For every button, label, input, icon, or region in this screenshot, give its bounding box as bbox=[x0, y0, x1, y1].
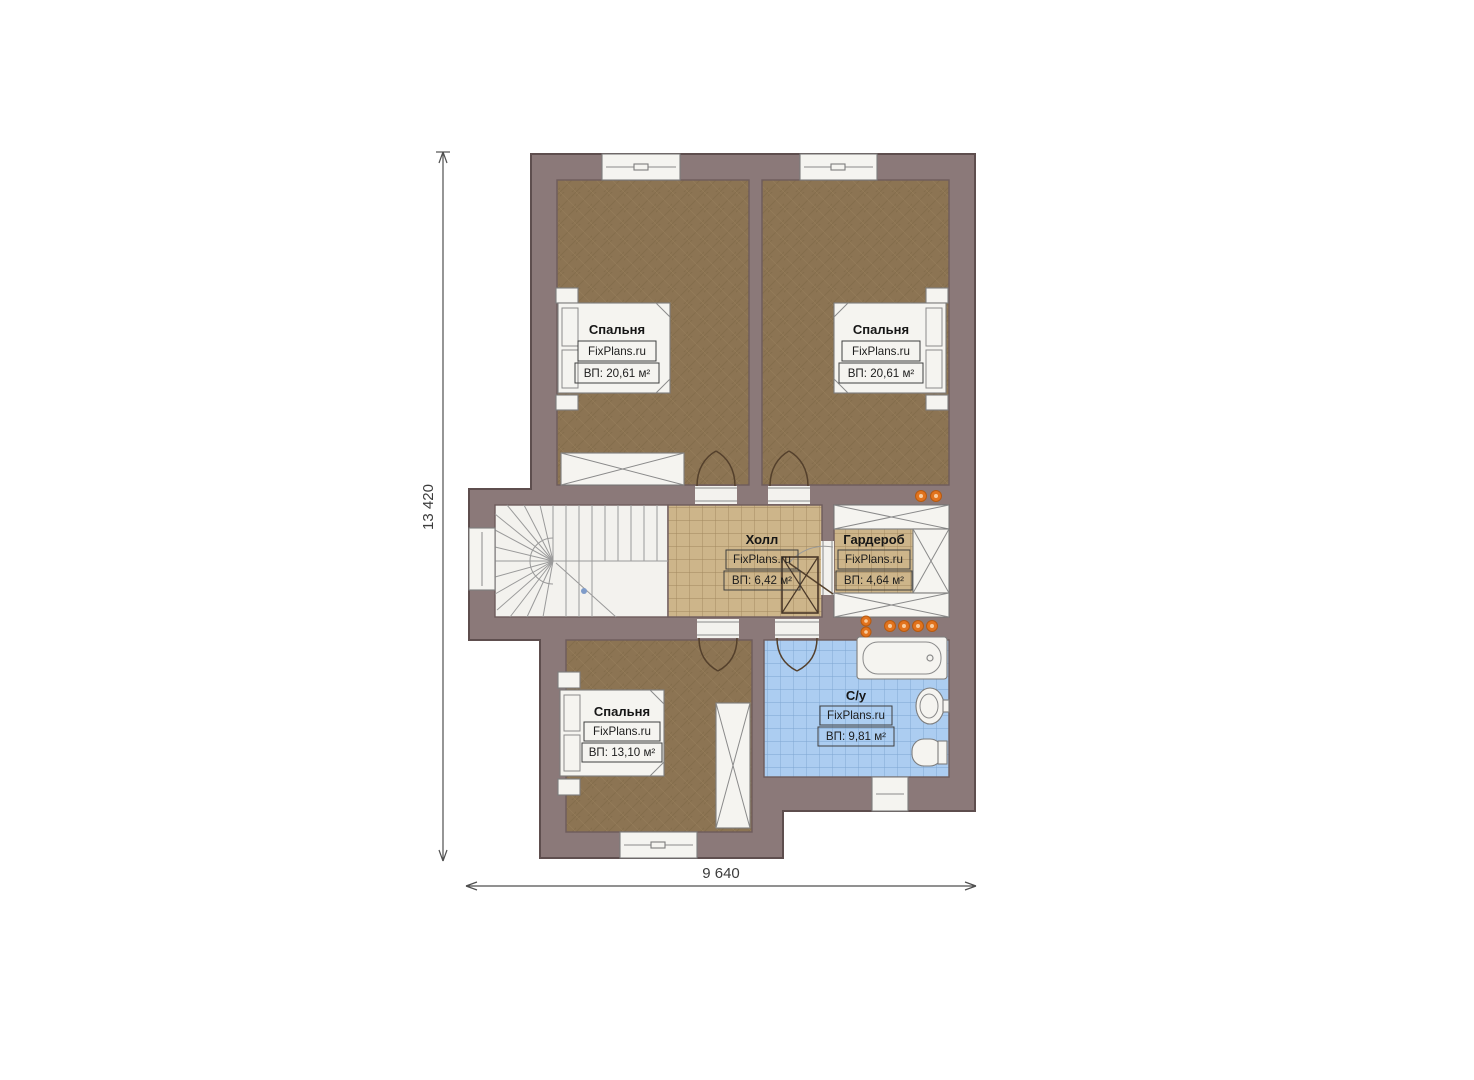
room-name: Холл bbox=[746, 532, 779, 547]
wardrobe-symbol bbox=[716, 703, 750, 828]
room-area: ВП: 20,61 м² bbox=[584, 367, 651, 380]
bathtub-symbol bbox=[857, 637, 947, 679]
room-brand: FixPlans.ru bbox=[593, 725, 651, 738]
wardrobe-symbol bbox=[834, 505, 949, 529]
dimension-vertical-value: 13 420 bbox=[420, 484, 437, 530]
window-symbol bbox=[872, 777, 908, 811]
wardrobe-symbol bbox=[834, 593, 949, 617]
room-area: ВП: 4,64 м² bbox=[844, 574, 904, 587]
room-label-bedroom-bottom: Спальня FixPlans.ru ВП: 13,10 м² bbox=[582, 704, 662, 762]
window-symbol bbox=[602, 154, 680, 180]
room-brand: FixPlans.ru bbox=[588, 345, 646, 358]
floor-plan-canvas: Спальня FixPlans.ru ВП: 20,61 м² Спальня… bbox=[0, 0, 1474, 1080]
room-name: С/у bbox=[846, 688, 867, 703]
dimension-vertical: 13 420 bbox=[420, 152, 450, 861]
toilet-symbol bbox=[912, 739, 947, 766]
room-brand: FixPlans.ru bbox=[845, 553, 903, 566]
room-area: ВП: 9,81 м² bbox=[826, 730, 886, 743]
room-area: ВП: 20,61 м² bbox=[848, 367, 915, 380]
room-label-wardrobe: Гардероб FixPlans.ru ВП: 4,64 м² bbox=[836, 532, 912, 590]
room-brand: FixPlans.ru bbox=[733, 553, 791, 566]
window-symbol bbox=[469, 528, 495, 590]
room-brand: FixPlans.ru bbox=[827, 709, 885, 722]
wardrobe-symbol bbox=[913, 529, 949, 593]
floor-plan-drawing: Спальня FixPlans.ru ВП: 20,61 м² Спальня… bbox=[0, 0, 1474, 1080]
room-area: ВП: 13,10 м² bbox=[589, 746, 656, 759]
window-symbol bbox=[620, 832, 697, 858]
room-name: Спальня bbox=[589, 322, 645, 337]
room-name: Спальня bbox=[853, 322, 909, 337]
dimension-horizontal-value: 9 640 bbox=[702, 865, 740, 882]
room-area: ВП: 6,42 м² bbox=[732, 574, 792, 587]
room-name: Спальня bbox=[594, 704, 650, 719]
room-brand: FixPlans.ru bbox=[852, 345, 910, 358]
room-name: Гардероб bbox=[843, 532, 904, 547]
window-symbol bbox=[800, 154, 877, 180]
wardrobe-symbol bbox=[561, 453, 684, 485]
dimension-horizontal: 9 640 bbox=[466, 865, 976, 890]
